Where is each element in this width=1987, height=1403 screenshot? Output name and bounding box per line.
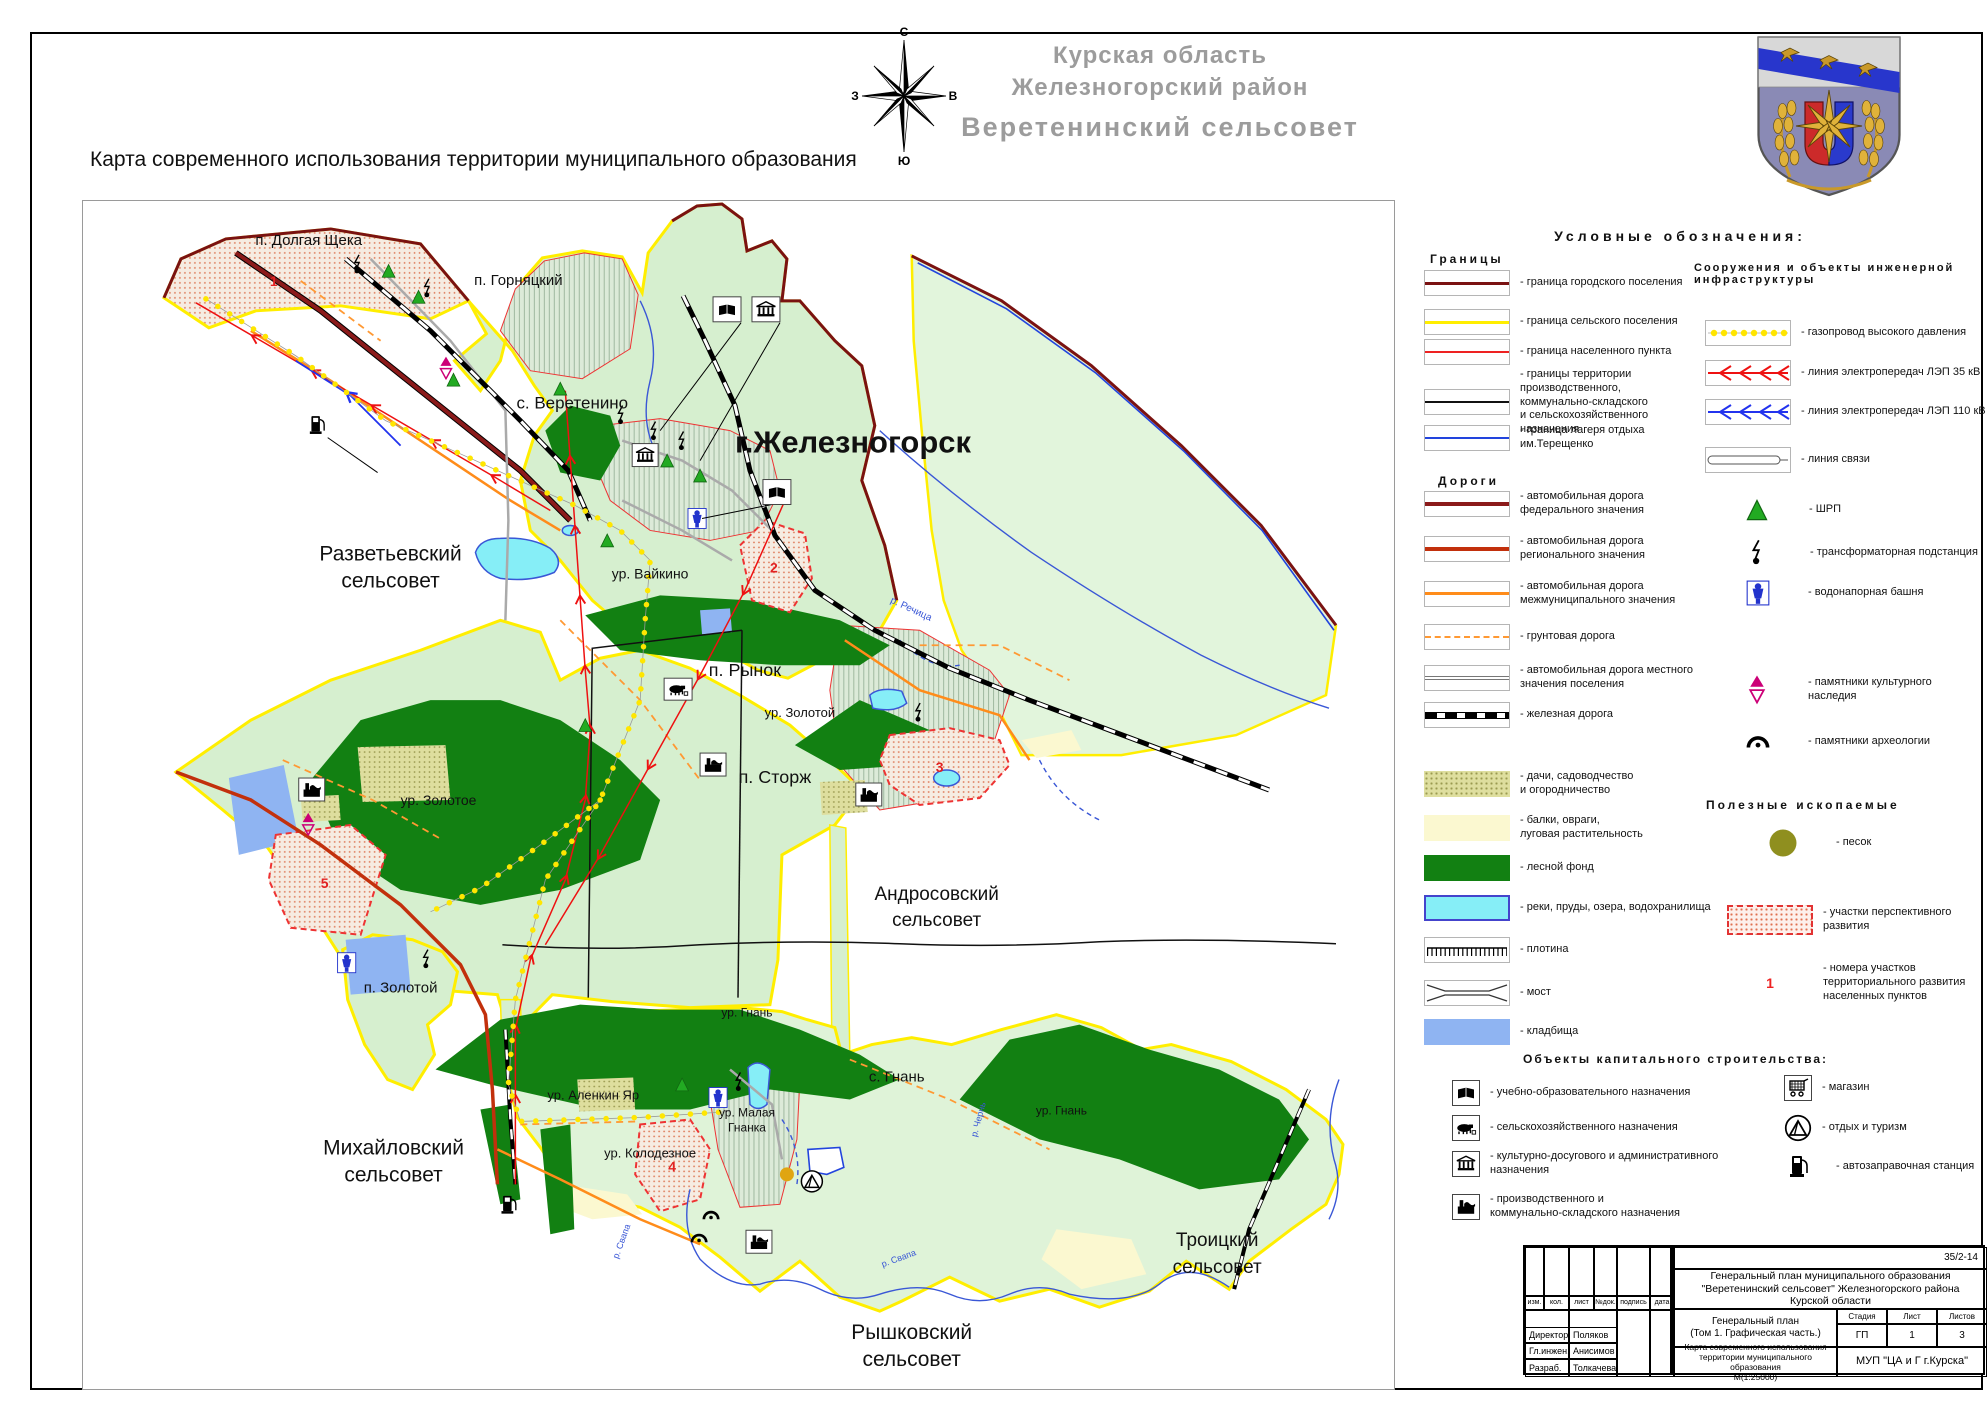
legend-item-monument: - памятники культурного наследия — [1748, 672, 1932, 708]
legend-item-lep35: - линия электропередач ЛЭП 35 кВ — [1705, 360, 1980, 386]
label-androsovsky-2: сельсовет — [892, 910, 981, 931]
project-title-1: Генеральный план муниципального образова… — [1710, 1270, 1950, 1283]
zone-number-2: 2 — [770, 559, 778, 575]
legend-item-gas-station: - автозаправочная станция — [1790, 1152, 1974, 1182]
legend-item-archaeology: - памятники археологии — [1746, 734, 1930, 750]
label-storzh: п. Сторж — [739, 767, 812, 787]
label-ur-gnan-1: ур. Гнань — [721, 1006, 772, 1020]
legend-item-comm-line: - линия связи — [1705, 447, 1870, 473]
legend-item-settlement-border: - граница населенного пункта — [1424, 339, 1671, 365]
role-engineer: Гл.инжен. — [1525, 1343, 1569, 1359]
role-director: Директор — [1525, 1327, 1569, 1343]
legend-item-local-road: - автомобильная дорога местного значения… — [1424, 664, 1693, 692]
project-title-2: "Веретенинский сельсовет" Железногорског… — [1701, 1283, 1959, 1296]
map-canvas[interactable]: 1 2 3 4 5 п. Долгая Щека п. Горняцкий с.… — [82, 200, 1395, 1390]
monument-icon — [1748, 672, 1768, 708]
label-alenkin-yar: ур. Аленкин Яр — [547, 1087, 639, 1102]
label-gornyatsky: п. Горняцкий — [474, 272, 562, 289]
label-vaikino: ур. Вайкино — [612, 565, 689, 581]
label-ryshkovsky-1: Рышковский — [851, 1321, 972, 1344]
legend-item-bridge: - мост — [1424, 980, 1551, 1006]
legend-item-cemetery: - кладбища — [1424, 1019, 1578, 1045]
label-river-rechitsa: р. Речица — [888, 595, 933, 624]
name-tolkacheva: Толкачева — [1569, 1359, 1617, 1377]
region-selsovet: Веретенинский сельсовет — [950, 109, 1370, 145]
project-title-3: Курской области — [1790, 1295, 1871, 1308]
label-razvetyevsky-1: Разветьевский — [319, 542, 461, 565]
compass-north: С — [900, 26, 909, 39]
cow-icon — [1452, 1115, 1480, 1141]
label-p-zolotoy: п. Золотой — [364, 980, 438, 997]
sand-deposit-dot — [780, 1167, 794, 1181]
region-rayon: Железногорский район — [950, 72, 1370, 104]
col-list: лист — [1569, 1296, 1594, 1310]
sheets-value: 3 — [1937, 1324, 1987, 1347]
legend-item-water-tower: - водонапорная башня — [1746, 580, 1923, 606]
legend-item-sand: - песок — [1768, 828, 1871, 858]
coat-of-arms — [1748, 33, 1910, 198]
label-veretenino: с. Веретенино — [516, 394, 628, 413]
doc-title-2: (Том 1. Графическая часть.) — [1690, 1328, 1821, 1340]
legend-item-transformer: - трансформаторная подстанция — [1748, 536, 1978, 570]
label-troitsky-2: сельсовет — [1173, 1257, 1262, 1278]
page-title: Карта современного использования террито… — [90, 148, 857, 172]
monument-icon — [440, 357, 451, 379]
legend-item-camp-border: - граница лагеря отдыха им.Терещенко — [1424, 424, 1644, 452]
legend-item-school: - учебно-образовательного назначения — [1452, 1080, 1690, 1106]
territory-corridor-east — [830, 825, 850, 1055]
legend-roads-header: Дороги — [1438, 474, 1499, 488]
water-tower-icon — [338, 953, 356, 973]
label-mikhaylovsky-2: сельсовет — [344, 1163, 443, 1186]
legend-item-development: - участки перспективного развития — [1727, 905, 1951, 935]
label-malaya-gnanka-1: ур. Малая — [719, 1105, 775, 1119]
label-river-svapa-1: р. Свапа — [611, 1223, 633, 1260]
legend-item-rural-border: - граница сельского поселения — [1424, 309, 1678, 335]
legend-item-shop: - магазин — [1784, 1075, 1869, 1101]
title-block-main: 35/2-14 Генеральный план муниципального … — [1672, 1245, 1985, 1375]
col-data: дата — [1650, 1296, 1674, 1310]
compass-rose: С Ю З В — [848, 26, 960, 166]
zone-number-5: 5 — [321, 875, 329, 891]
region-oblast: Курская область — [950, 40, 1370, 72]
legend-item-dam: - плотина — [1424, 937, 1568, 963]
label-zheleznogorsk: г.Железногорск — [735, 425, 971, 460]
label-ur-zolotoy: ур. Золотой — [765, 705, 835, 720]
compass-west: З — [851, 89, 859, 103]
zone-number-1: 1 — [270, 273, 278, 289]
shrp-icon — [447, 373, 460, 386]
legend-item-city-border: - граница городского поселения — [1424, 270, 1683, 296]
label-dolgaya-shcheka: п. Долгая Щека — [255, 232, 362, 249]
archaeology-icon — [1746, 734, 1770, 750]
name-anisimov: Анисимов — [1569, 1343, 1617, 1359]
legend-item-regional-road: - автомобильная дорога регионального зна… — [1424, 535, 1645, 563]
label-ur-gnan-2: ур. Гнань — [1036, 1103, 1087, 1117]
title-block-left-grid: изм. кол. лист №док. подпись дата Директ… — [1523, 1245, 1672, 1375]
label-rynok: п. Рынок — [709, 660, 781, 680]
stage-header: Стадия — [1837, 1309, 1887, 1324]
sheet-value: 1 — [1887, 1324, 1937, 1347]
legend-item-lep110: - линия электропередач ЛЭП 110 кВ — [1705, 399, 1986, 425]
col-izm: изм. — [1525, 1296, 1544, 1310]
legend-item-gas-pipeline: - газопровод высокого давления — [1705, 320, 1966, 346]
gas-station-icon — [310, 416, 378, 472]
map-sheet-title: Карта современного использования террито… — [1674, 1347, 1837, 1377]
sheets-header: Листов — [1937, 1309, 1987, 1324]
sand-icon — [1768, 828, 1798, 858]
project-title: Генеральный план муниципального образова… — [1674, 1269, 1987, 1309]
legend-item-water: - реки, пруды, озера, водохранилища — [1424, 895, 1711, 921]
sheet-header: Лист — [1887, 1309, 1937, 1324]
col-podpis: подпись — [1617, 1296, 1650, 1310]
factory-icon — [299, 778, 325, 801]
transformer-icon — [1748, 536, 1768, 570]
factory-icon — [700, 753, 726, 776]
shrp-icon — [1745, 498, 1771, 522]
col-ndok: №док. — [1594, 1296, 1617, 1310]
label-mikhaylovsky-1: Михайловский — [323, 1136, 464, 1159]
legend-item-dacha: - дачи, садоводчество и огородничество — [1424, 770, 1633, 798]
factory-icon — [746, 1230, 772, 1253]
legend-borders-header: Границы — [1430, 252, 1504, 266]
farm-icon — [664, 678, 692, 700]
legend-minerals-header: Полезные ископаемые — [1706, 798, 1900, 812]
legend-item-industrial: - производственного и коммунально-складс… — [1452, 1193, 1680, 1221]
legend-item-federal-road: - автомобильная дорога федерального знач… — [1424, 490, 1644, 518]
col-kol: кол. — [1544, 1296, 1569, 1310]
label-kolodeznoye: ур. Колодезное — [604, 1145, 696, 1160]
water-tower-icon — [1746, 580, 1772, 606]
zone-number-4: 4 — [668, 1158, 676, 1174]
legend-title: Условные обозначения: — [1520, 228, 1840, 244]
legend-item-ground-road: - грунтовая дорога — [1424, 624, 1615, 650]
region-title: Курская область Железногорский район Вер… — [950, 40, 1370, 145]
legend-item-railway: - железная дорога — [1424, 702, 1613, 728]
cart-icon — [1784, 1075, 1812, 1101]
organization: МУП "ЦА и Г г.Курска" — [1837, 1347, 1987, 1377]
factory-icon — [856, 783, 882, 806]
stage-value: ГП — [1837, 1324, 1887, 1347]
tourism-icon — [801, 1171, 822, 1192]
legend-item-intermunicipal-road: - автомобильная дорога межмуниципального… — [1424, 580, 1675, 608]
label-ur-zolotoye: ур. Золотое — [401, 792, 477, 808]
legend-capital-header: Объекты капитального строительства: — [1523, 1052, 1828, 1066]
role-developer: Разраб. — [1525, 1359, 1569, 1377]
factory-icon — [1452, 1194, 1480, 1220]
name-polyakov: Поляков — [1569, 1327, 1617, 1343]
label-ryshkovsky-2: сельсовет — [863, 1348, 962, 1371]
book-icon — [1452, 1080, 1480, 1106]
label-s-gnan: с. Гнань — [869, 1069, 925, 1086]
legend-item-culture-admin: - культурно-досугового и административно… — [1452, 1150, 1718, 1178]
legend-item-zone-numbers: 1- номера участков территориального разв… — [1727, 962, 1965, 1003]
legend-item-ravine: - балки, овраги, луговая растительность — [1424, 814, 1643, 842]
gas-pump-icon — [1790, 1152, 1812, 1182]
doc-title-1: Генеральный план — [1712, 1316, 1799, 1328]
legend-infra-header: Сооружения и объекты инженерной инфрастр… — [1694, 262, 1954, 286]
compass-east: В — [949, 89, 958, 103]
tent-icon — [1784, 1114, 1812, 1142]
legend-item-farm: - сельскохозяйственного назначения — [1452, 1115, 1678, 1141]
label-androsovsky-1: Андросовский — [875, 884, 999, 905]
doc-code: 35/2-14 — [1674, 1247, 1987, 1269]
label-razvetyevsky-2: сельсовет — [341, 569, 440, 592]
bank-icon — [1452, 1151, 1480, 1177]
legend-item-forest: - лесной фонд — [1424, 855, 1594, 881]
compass-south: Ю — [898, 154, 910, 166]
legend-item-shrp: - ШРП — [1745, 498, 1841, 522]
label-malaya-gnanka-2: Гнанка — [728, 1120, 766, 1134]
zone-number-3: 3 — [936, 759, 944, 775]
label-troitsky-1: Троицкий — [1176, 1230, 1259, 1251]
legend-item-tourism: - отдых и туризм — [1784, 1114, 1907, 1142]
admin-icon — [632, 444, 658, 467]
